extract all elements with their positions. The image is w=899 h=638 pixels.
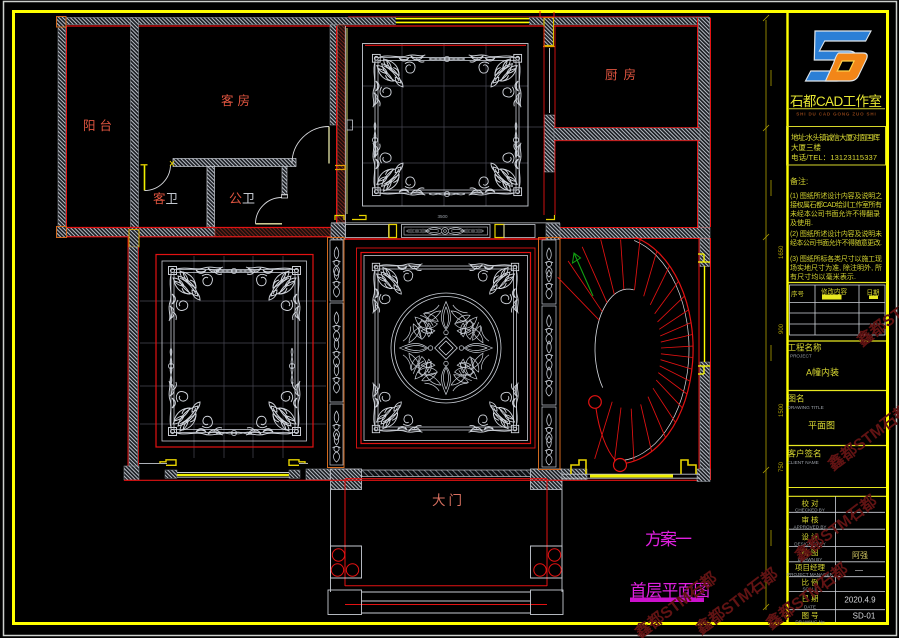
svg-text:客户签名: 客户签名 [788,449,822,459]
svg-text:未经本公司书面允许不得翻录: 未经本公司书面允许不得翻录 [790,209,880,218]
svg-text:经本公司书面允许不得随意更改.: 经本公司书面允许不得随意更改. [790,238,882,247]
svg-text:CHECKED BY: CHECKED BY [795,507,825,512]
svg-text:大厦三楼: 大厦三楼 [791,142,821,152]
svg-text:2020.4.9: 2020.4.9 [844,596,876,605]
svg-text:审 核: 审 核 [801,515,819,525]
svg-text:900: 900 [779,323,785,334]
svg-text:DRAWING No: DRAWING No [795,620,825,625]
svg-text:(1) 图纸所述设计内容及说明之: (1) 图纸所述设计内容及说明之 [790,191,882,200]
svg-text:图 号: 图 号 [801,611,818,620]
svg-text:PROJECT: PROJECT [790,353,812,358]
svg-text:1500: 1500 [779,403,785,417]
svg-text:公卫: 公卫 [229,191,255,206]
svg-text:1650: 1650 [779,245,785,259]
svg-text:平面图: 平面图 [808,421,835,431]
svg-text:A幢内装: A幢内装 [806,367,839,378]
svg-text:工程名称: 工程名称 [788,343,823,353]
svg-text:3500: 3500 [438,214,449,219]
svg-text:方案一: 方案一 [645,530,692,549]
svg-text:CLIENT NAME: CLIENT NAME [787,460,818,465]
svg-text:场实地尺寸为准, 除注明外, 所: 场实地尺寸为准, 除注明外, 所 [790,263,882,272]
svg-text:SHI DU CAD GONG ZUO SHI: SHI DU CAD GONG ZUO SHI [796,112,876,117]
svg-text:客卫: 客卫 [153,191,178,206]
svg-text:电话/TEL：13123115337: 电话/TEL：13123115337 [791,152,877,162]
svg-text:有尺寸均以毫米表示.: 有尺寸均以毫米表示. [790,272,856,281]
svg-text:图名: 图名 [788,394,805,404]
svg-text:地址:水头镇诚信大厦对面国辉: 地址:水头镇诚信大厦对面国辉 [791,132,881,142]
svg-text:DRAWING TITLE: DRAWING TITLE [787,405,823,410]
svg-text:750: 750 [779,461,785,472]
svg-text:石都CAD工作室: 石都CAD工作室 [790,93,882,109]
svg-text:序号: 序号 [791,289,805,298]
svg-text:日期: 日期 [867,289,881,297]
svg-text:修改内容: 修改内容 [821,287,848,296]
svg-text:校 对: 校 对 [801,498,819,508]
svg-text:(3) 图纸所标各类尺寸以施工现: (3) 图纸所标各类尺寸以施工现 [790,254,882,263]
svg-text:项目经理: 项目经理 [795,562,825,572]
svg-text:备注:: 备注: [790,176,808,186]
svg-text:(2) 图纸所述设计内容及说明未: (2) 图纸所述设计内容及说明未 [790,229,882,238]
svg-text:接权属石都CAD绘训工作室所有: 接权属石都CAD绘训工作室所有 [790,200,882,209]
svg-text:SD-01: SD-01 [853,612,876,621]
svg-text:—: — [855,566,863,575]
svg-text:及使用.: 及使用. [790,218,813,227]
svg-text:阿强: 阿强 [852,551,868,560]
